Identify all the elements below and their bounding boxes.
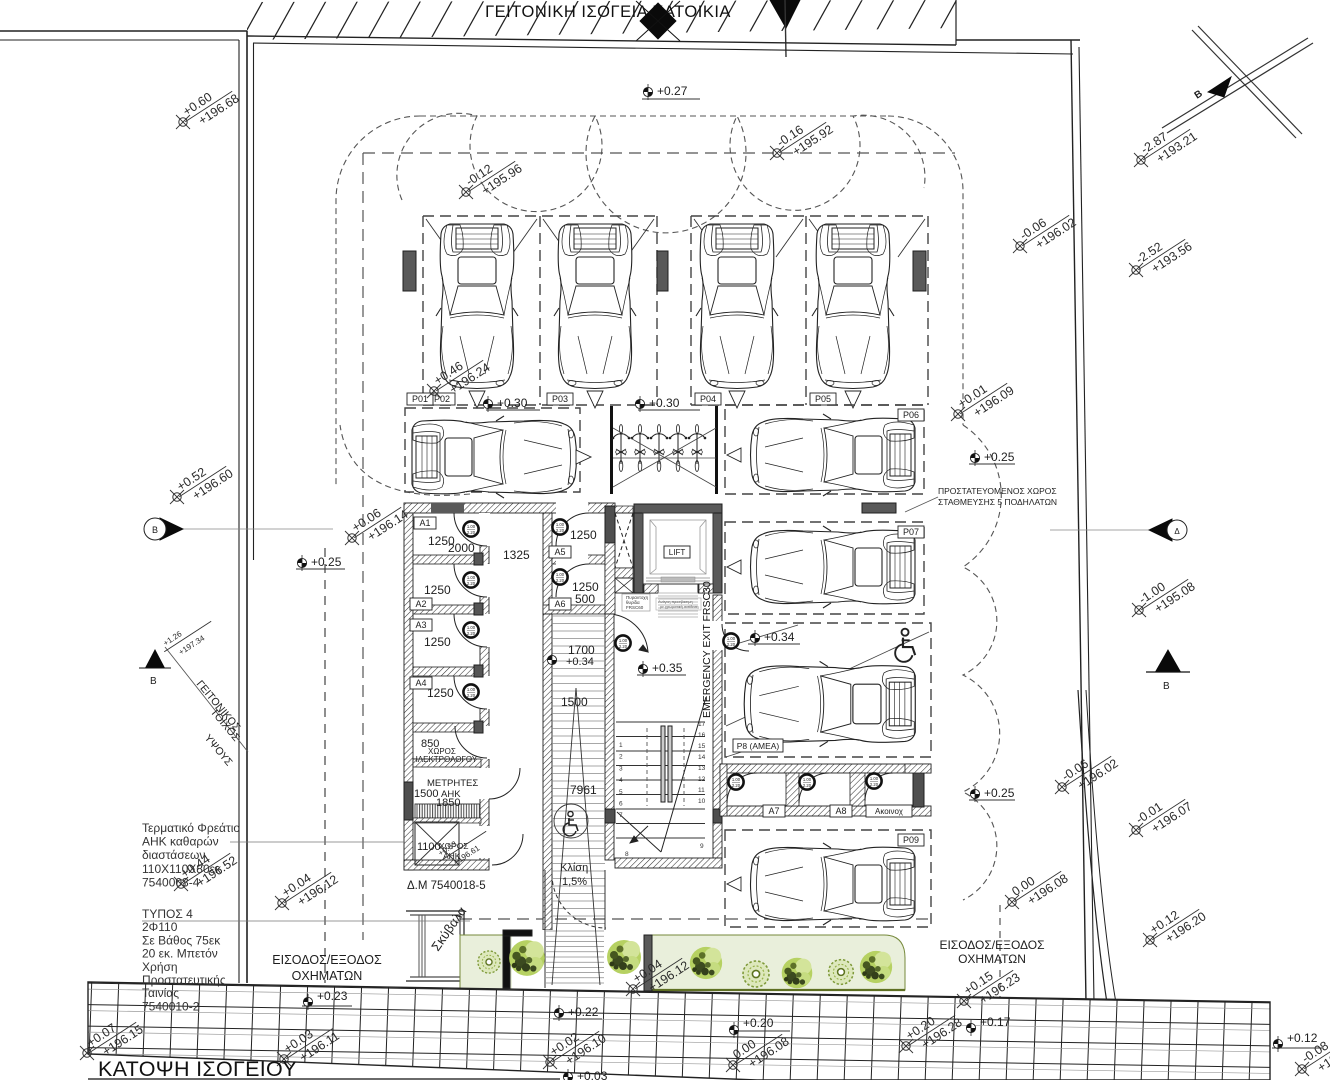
- svg-text:+0.34: +0.34: [566, 656, 594, 668]
- svg-text:P02: P02: [434, 394, 450, 404]
- svg-text:Σε Βάθος 75εκ: Σε Βάθος 75εκ: [142, 933, 221, 947]
- svg-text:1,5%: 1,5%: [562, 876, 587, 888]
- svg-text:+0.35: +0.35: [652, 661, 683, 675]
- svg-text:1.00: 1.00: [619, 638, 628, 643]
- svg-text:8: 8: [625, 851, 629, 858]
- svg-text:Ακοινοχ: Ακοινοχ: [875, 807, 904, 816]
- svg-text:1250: 1250: [427, 686, 454, 700]
- svg-text:2.20: 2.20: [467, 530, 476, 535]
- svg-text:+0.03: +0.03: [577, 1069, 608, 1080]
- svg-text:10: 10: [698, 798, 706, 805]
- svg-text:1325: 1325: [503, 548, 530, 562]
- svg-text:1250: 1250: [570, 528, 597, 542]
- svg-text:5: 5: [619, 789, 623, 796]
- svg-text:ΕΙΣΟΔΟΣ/ΕΞΟΔΟΣ: ΕΙΣΟΔΟΣ/ΕΞΟΔΟΣ: [939, 938, 1044, 952]
- svg-text:11: 11: [698, 787, 705, 794]
- svg-text:2.20: 2.20: [619, 644, 628, 649]
- svg-text:2.20: 2.20: [732, 783, 741, 788]
- svg-text:2.20: 2.20: [467, 631, 476, 636]
- svg-text:Δ: Δ: [1174, 527, 1180, 536]
- svg-text:P07: P07: [903, 527, 919, 537]
- svg-text:A5: A5: [554, 547, 565, 557]
- svg-text:3: 3: [619, 765, 623, 772]
- svg-text:EMERGENCY EXIT FRSC30: EMERGENCY EXIT FRSC30: [701, 581, 713, 718]
- svg-text:6: 6: [619, 801, 623, 808]
- svg-text:με χρωματική αντίθεση: με χρωματική αντίθεση: [660, 605, 699, 609]
- svg-text:1.00: 1.00: [732, 777, 741, 782]
- svg-text:1.00: 1.00: [467, 625, 476, 630]
- svg-text:2Φ110: 2Φ110: [142, 920, 178, 934]
- svg-text:Προστατευτικής: Προστατευτικής: [142, 973, 226, 987]
- svg-text:7540003-4: 7540003-4: [142, 875, 200, 889]
- svg-text:+0.22: +0.22: [568, 1005, 599, 1019]
- svg-text:+0.12: +0.12: [1287, 1031, 1318, 1045]
- svg-text:2000: 2000: [448, 541, 475, 555]
- svg-text:1500: 1500: [414, 788, 438, 800]
- svg-text:1250: 1250: [424, 635, 451, 649]
- svg-text:P06: P06: [903, 410, 919, 420]
- svg-text:Δ.Μ 7540018-5: Δ.Μ 7540018-5: [407, 880, 486, 892]
- svg-text:7540010-2: 7540010-2: [142, 999, 200, 1013]
- svg-text:A2: A2: [415, 599, 426, 609]
- svg-text:+0.30: +0.30: [497, 396, 528, 410]
- svg-text:+0.23: +0.23: [317, 989, 348, 1003]
- svg-text:+0.25: +0.25: [311, 555, 342, 569]
- svg-text:A8: A8: [835, 806, 846, 816]
- svg-text:13: 13: [698, 765, 706, 772]
- svg-text:2.20: 2.20: [467, 693, 476, 698]
- svg-text:16: 16: [698, 732, 706, 739]
- svg-text:2: 2: [619, 754, 623, 761]
- svg-text:ΕΙΣΟΔΟΣ/ΕΞΟΔΟΣ: ΕΙΣΟΔΟΣ/ΕΞΟΔΟΣ: [272, 953, 382, 967]
- svg-text:P01: P01: [412, 394, 428, 404]
- svg-text:+0.25: +0.25: [984, 450, 1015, 464]
- svg-text:ΣΤΑΘΜΕΥΣΗΣ 5 ΠΟΔΗΛΑΤΩΝ: ΣΤΑΘΜΕΥΣΗΣ 5 ΠΟΔΗΛΑΤΩΝ: [938, 497, 1057, 507]
- svg-text:Τερματικό Φρεάτιο: Τερματικό Φρεάτιο: [142, 821, 240, 835]
- svg-text:ΠΡΟΣΤΑΤΕΥΟΜΕΝΟΣ ΧΩΡΟΣ: ΠΡΟΣΤΑΤΕΥΟΜΕΝΟΣ ΧΩΡΟΣ: [938, 486, 1057, 496]
- svg-text:FRSC60: FRSC60: [626, 605, 644, 610]
- svg-text:15: 15: [698, 743, 706, 750]
- svg-text:+0.27: +0.27: [657, 84, 688, 98]
- svg-text:1.00: 1.00: [803, 777, 812, 782]
- svg-text:1.00: 1.00: [556, 572, 565, 577]
- svg-text:LIFT: LIFT: [669, 548, 686, 557]
- svg-text:B: B: [152, 525, 158, 535]
- svg-text:A6: A6: [554, 599, 565, 609]
- svg-text:P05: P05: [815, 394, 831, 404]
- svg-text:+0.30: +0.30: [649, 396, 680, 410]
- svg-text:1250: 1250: [424, 583, 451, 597]
- svg-text:17: 17: [698, 721, 706, 728]
- svg-text:2.20: 2.20: [556, 528, 565, 533]
- svg-text:Κλίση: Κλίση: [560, 862, 588, 874]
- svg-text:B: B: [150, 676, 157, 687]
- svg-text:A1: A1: [419, 518, 430, 528]
- svg-text:P04: P04: [700, 394, 716, 404]
- svg-text:+0.25: +0.25: [984, 786, 1015, 800]
- svg-text:Ταινίας: Ταινίας: [142, 986, 179, 1000]
- svg-text:1.00: 1.00: [467, 687, 476, 692]
- svg-text:2.20: 2.20: [870, 782, 879, 787]
- svg-text:2.20: 2.20: [727, 642, 736, 647]
- svg-text:ΑΗΚ καθαρών: ΑΗΚ καθαρών: [142, 835, 219, 849]
- svg-text:1.00: 1.00: [870, 776, 879, 781]
- svg-text:ΗΛΕΚΤΡΟΛΟΓΟΥ: ΗΛΕΚΤΡΟΛΟΓΟΥ: [412, 755, 478, 764]
- svg-text:ΟΧΗΜΑΤΩΝ: ΟΧΗΜΑΤΩΝ: [958, 952, 1026, 966]
- svg-text:14: 14: [698, 754, 706, 761]
- svg-text:+0.34: +0.34: [764, 630, 795, 644]
- svg-text:20 εκ. Μπετόν: 20 εκ. Μπετόν: [142, 947, 218, 961]
- svg-text:P03: P03: [552, 394, 568, 404]
- svg-text:A3: A3: [415, 620, 426, 630]
- svg-text:A7: A7: [768, 806, 779, 816]
- svg-text:1.00: 1.00: [467, 575, 476, 580]
- svg-text:ΚΑΤΟΨΗ ΙΣΟΓΕΙΟΥ: ΚΑΤΟΨΗ ΙΣΟΓΕΙΟΥ: [98, 1057, 297, 1080]
- svg-text:4: 4: [619, 777, 623, 784]
- svg-text:1850: 1850: [436, 797, 460, 809]
- svg-text:2.20: 2.20: [803, 783, 812, 788]
- svg-text:ΟΧΗΜΑΤΩΝ: ΟΧΗΜΑΤΩΝ: [292, 969, 363, 983]
- svg-text:500: 500: [575, 592, 595, 606]
- svg-text:1.00: 1.00: [467, 524, 476, 529]
- svg-text:7: 7: [619, 812, 623, 819]
- svg-text:2.20: 2.20: [467, 581, 476, 586]
- svg-text:12: 12: [698, 776, 706, 783]
- svg-text:Χρήση: Χρήση: [142, 960, 178, 974]
- svg-text:1.00: 1.00: [727, 636, 736, 641]
- svg-text:ΤΥΠΟΣ 4: ΤΥΠΟΣ 4: [142, 907, 193, 921]
- svg-text:+0.20: +0.20: [743, 1016, 774, 1030]
- svg-text:P09: P09: [903, 835, 919, 845]
- svg-text:1.00: 1.00: [556, 522, 565, 527]
- svg-text:P8 (AMEA): P8 (AMEA): [737, 741, 780, 751]
- svg-text:+0.17: +0.17: [980, 1015, 1011, 1029]
- svg-text:2.20: 2.20: [556, 578, 565, 583]
- svg-text:B: B: [1163, 681, 1170, 692]
- svg-text:1700: 1700: [568, 643, 595, 657]
- svg-text:A4: A4: [415, 678, 426, 688]
- svg-text:1: 1: [619, 742, 623, 749]
- svg-text:9: 9: [700, 843, 704, 850]
- svg-text:ΓΕΙΤΟΝΙΚΗ ΙΣΟΓΕΙΑ ΚΑΤΟΙΚΙΑ: ΓΕΙΤΟΝΙΚΗ ΙΣΟΓΕΙΑ ΚΑΤΟΙΚΙΑ: [485, 3, 731, 21]
